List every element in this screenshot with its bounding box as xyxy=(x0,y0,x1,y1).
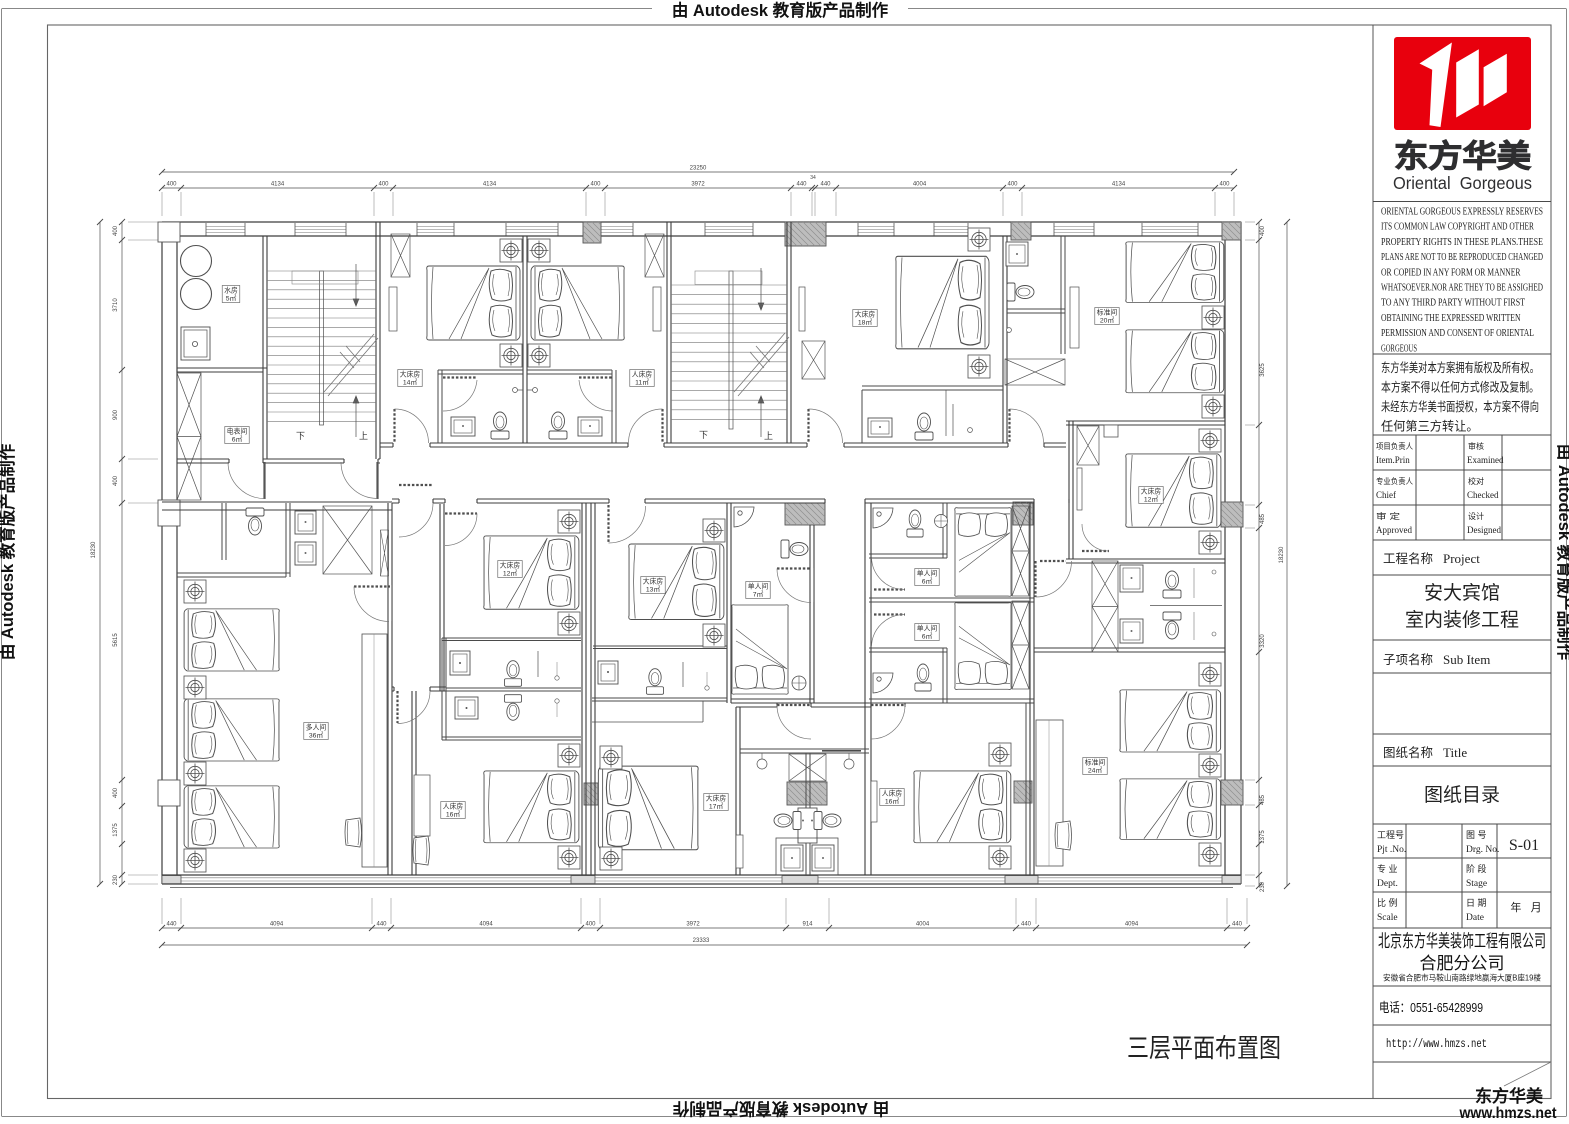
svg-text:400: 400 xyxy=(166,182,177,188)
svg-text:Checked: Checked xyxy=(1467,490,1499,500)
svg-text:18230: 18230 xyxy=(1279,546,1285,563)
svg-text:安大宾馆: 安大宾馆 xyxy=(1424,582,1500,604)
svg-text:4134: 4134 xyxy=(483,182,497,188)
svg-text:专 业: 专 业 xyxy=(1377,863,1398,874)
svg-text:Stage: Stage xyxy=(1466,879,1487,889)
svg-text:大床房: 大床房 xyxy=(400,370,421,379)
svg-text:16㎡: 16㎡ xyxy=(446,810,461,819)
svg-text:大床房: 大床房 xyxy=(500,561,521,570)
svg-text:400: 400 xyxy=(1007,182,1018,188)
svg-text:Drg. No.: Drg. No. xyxy=(1466,845,1499,855)
svg-text:上: 上 xyxy=(764,431,773,441)
svg-text:230: 230 xyxy=(113,874,119,885)
svg-text:440: 440 xyxy=(1021,922,1032,928)
svg-text:6㎡: 6㎡ xyxy=(232,435,243,444)
svg-text:18230: 18230 xyxy=(91,541,97,558)
svg-text:http://www.hmzs.net: http://www.hmzs.net xyxy=(1386,1038,1487,1051)
svg-text:400: 400 xyxy=(1219,182,1230,188)
svg-text:5615: 5615 xyxy=(113,633,119,647)
svg-text:电话：0551-65428999: 电话：0551-65428999 xyxy=(1379,1000,1483,1015)
svg-text:工程名称: 工程名称 xyxy=(1383,551,1433,566)
svg-text:专业负责人: 专业负责人 xyxy=(1376,476,1413,486)
svg-text:单人间: 单人间 xyxy=(748,582,769,591)
svg-text:485: 485 xyxy=(1260,513,1266,524)
svg-text:23333: 23333 xyxy=(693,938,710,944)
svg-text:34: 34 xyxy=(810,175,816,181)
svg-text:ORIENTAL GORGEOUS EXPRESSLY RE: ORIENTAL GORGEOUS EXPRESSLY RESERVES xyxy=(1381,207,1543,218)
svg-text:PERMISSION AND CONSENT OF ORIE: PERMISSION AND CONSENT OF ORIENTAL xyxy=(1381,328,1534,339)
svg-text:图纸目录: 图纸目录 xyxy=(1424,784,1500,806)
svg-text:S-01: S-01 xyxy=(1509,837,1539,854)
svg-text:北京东方华美装饰工程有限公司: 北京东方华美装饰工程有限公司 xyxy=(1378,931,1546,951)
svg-text:电表间: 电表间 xyxy=(227,427,248,436)
svg-text:由 Autodesk 教育版产品制作: 由 Autodesk 教育版产品制作 xyxy=(672,0,889,20)
svg-text:16㎡: 16㎡ xyxy=(885,797,900,806)
svg-text:东方华美对本方案拥有版权及所有权。: 东方华美对本方案拥有版权及所有权。 xyxy=(1381,360,1539,375)
svg-text:440: 440 xyxy=(376,922,387,928)
svg-text:GORGEOUS: GORGEOUS xyxy=(1381,343,1417,354)
svg-text:1375: 1375 xyxy=(1260,830,1266,844)
svg-text:由 Autodesk 教育版产品制作: 由 Autodesk 教育版产品制作 xyxy=(1555,444,1569,661)
svg-text:OBTAINING THE EXPRESSED WRITTE: OBTAINING THE EXPRESSED WRITTEN xyxy=(1381,313,1521,324)
svg-text:ITS COMMON LAW COPYRIGHT AND O: ITS COMMON LAW COPYRIGHT AND OTHER xyxy=(1381,222,1534,233)
svg-text:400: 400 xyxy=(113,475,119,486)
svg-text:OR COPIED IN ANY FORM OR MANNE: OR COPIED IN ANY FORM OR MANNER xyxy=(1381,267,1521,278)
svg-text:设计: 设计 xyxy=(1468,511,1484,521)
svg-text:13㎡: 13㎡ xyxy=(646,585,661,594)
svg-text:1375: 1375 xyxy=(113,823,119,837)
svg-text:TO ANY THIRD PARTY WITHOUT FIR: TO ANY THIRD PARTY WITHOUT FIRST xyxy=(1381,298,1525,309)
svg-text:年 月: 年 月 xyxy=(1510,900,1541,914)
svg-text:Chief: Chief xyxy=(1376,490,1396,500)
svg-text:400: 400 xyxy=(590,182,601,188)
svg-text:室内装修工程: 室内装修工程 xyxy=(1405,609,1519,631)
svg-text:Sub Item: Sub Item xyxy=(1443,652,1490,667)
svg-text:Pjt .No.: Pjt .No. xyxy=(1377,845,1406,855)
svg-text:本方案不得以任何方式修改及复制。: 本方案不得以任何方式修改及复制。 xyxy=(1381,380,1539,395)
svg-text:11㎡: 11㎡ xyxy=(635,378,649,387)
svg-text:图 号: 图 号 xyxy=(1466,830,1487,840)
svg-text:Scale: Scale xyxy=(1377,913,1398,923)
svg-text:17㎡: 17㎡ xyxy=(709,802,724,811)
svg-text:项目负责人: 项目负责人 xyxy=(1376,441,1413,451)
svg-text:未经东方华美书面授权，本方案不得向: 未经东方华美书面授权，本方案不得向 xyxy=(1381,399,1539,414)
svg-text:大床房: 大床房 xyxy=(1141,487,1162,496)
svg-text:4094: 4094 xyxy=(270,922,284,928)
svg-text:比 例: 比 例 xyxy=(1377,897,1398,908)
svg-text:大床房: 大床房 xyxy=(855,310,876,319)
svg-text:标准间: 标准间 xyxy=(1097,308,1118,317)
svg-text:PLANS ARE NOT TO BE REPRODUCED: PLANS ARE NOT TO BE REPRODUCED CHANGED xyxy=(1381,252,1543,263)
svg-text:3710: 3710 xyxy=(113,298,119,312)
svg-text:合肥分公司: 合肥分公司 xyxy=(1420,954,1505,973)
svg-text:18㎡: 18㎡ xyxy=(858,318,873,327)
svg-text:东方华美: 东方华美 xyxy=(1394,139,1531,174)
svg-text:3972: 3972 xyxy=(691,182,705,188)
svg-text:审 定: 审 定 xyxy=(1376,511,1400,521)
svg-text:400: 400 xyxy=(585,922,596,928)
svg-text:440: 440 xyxy=(1232,922,1243,928)
svg-text:900: 900 xyxy=(113,409,119,420)
svg-text:三层平面布置图: 三层平面布置图 xyxy=(1127,1034,1281,1063)
svg-text:6㎡: 6㎡ xyxy=(922,577,933,586)
svg-text:日 期: 日 期 xyxy=(1466,898,1487,908)
svg-text:3625: 3625 xyxy=(1260,363,1266,377)
svg-text:400: 400 xyxy=(1260,225,1266,236)
svg-text:由 Autodesk 教育版产品制作: 由 Autodesk 教育版产品制作 xyxy=(0,443,17,660)
svg-text:阶 段: 阶 段 xyxy=(1466,863,1487,874)
svg-text:人床房: 人床房 xyxy=(443,802,464,811)
svg-text:单人间: 单人间 xyxy=(917,569,938,578)
svg-text:校对: 校对 xyxy=(1468,476,1484,486)
svg-text:4004: 4004 xyxy=(913,182,927,188)
svg-text:大床房: 大床房 xyxy=(643,577,664,586)
svg-text:PROPERTY RIGHTS IN THESE PLANS: PROPERTY RIGHTS IN THESE PLANS.THESE xyxy=(1381,237,1543,248)
svg-text:Approved: Approved xyxy=(1376,525,1412,535)
svg-text:上: 上 xyxy=(359,431,368,441)
svg-text:多人间: 多人间 xyxy=(306,723,327,732)
svg-text:www.hmzs.net: www.hmzs.net xyxy=(1459,1105,1557,1122)
svg-text:7㎡: 7㎡ xyxy=(753,590,764,599)
svg-text:5㎡: 5㎡ xyxy=(226,294,237,303)
svg-text:4094: 4094 xyxy=(1125,922,1139,928)
svg-text:914: 914 xyxy=(802,922,813,928)
svg-text:23250: 23250 xyxy=(690,166,707,172)
svg-text:400: 400 xyxy=(113,225,119,236)
svg-text:14㎡: 14㎡ xyxy=(403,378,418,387)
svg-text:大床房: 大床房 xyxy=(706,794,727,803)
svg-text:Examined: Examined xyxy=(1467,455,1504,465)
svg-text:4134: 4134 xyxy=(271,182,285,188)
svg-text:6㎡: 6㎡ xyxy=(922,632,933,641)
svg-text:12㎡: 12㎡ xyxy=(1144,495,1159,504)
svg-text:230: 230 xyxy=(1260,881,1266,892)
svg-text:Item.Prin: Item.Prin xyxy=(1376,455,1410,465)
svg-text:图纸名称: 图纸名称 xyxy=(1383,745,1433,760)
svg-text:Dept.: Dept. xyxy=(1377,879,1398,889)
svg-text:20㎡: 20㎡ xyxy=(1100,316,1115,325)
svg-text:Oriental Gorgeous: Oriental Gorgeous xyxy=(1393,173,1532,193)
svg-text:Designed: Designed xyxy=(1467,525,1501,535)
svg-text:440: 440 xyxy=(796,182,807,188)
svg-text:4134: 4134 xyxy=(1112,182,1126,188)
svg-text:3320: 3320 xyxy=(1260,634,1266,648)
svg-text:440: 440 xyxy=(820,182,831,188)
svg-text:Date: Date xyxy=(1466,913,1484,923)
svg-text:24㎡: 24㎡ xyxy=(1088,766,1103,775)
svg-text:485: 485 xyxy=(1260,794,1266,805)
svg-text:安徽省合肥市马鞍山南路绿地赢海大厦B座19楼: 安徽省合肥市马鞍山南路绿地赢海大厦B座19楼 xyxy=(1383,973,1541,983)
svg-text:单人间: 单人间 xyxy=(917,624,938,633)
svg-text:12㎡: 12㎡ xyxy=(503,569,518,578)
svg-text:36㎡: 36㎡ xyxy=(309,731,324,740)
svg-text:Project: Project xyxy=(1443,551,1480,566)
svg-text:Title: Title xyxy=(1443,745,1467,760)
svg-text:由 Autodesk 教育版产品制作: 由 Autodesk 教育版产品制作 xyxy=(672,1099,889,1119)
svg-text:4004: 4004 xyxy=(916,922,930,928)
svg-text:任何第三方转让。: 任何第三方转让。 xyxy=(1381,419,1479,434)
svg-text:工程号: 工程号 xyxy=(1377,830,1404,840)
svg-text:审核: 审核 xyxy=(1468,441,1484,451)
svg-text:标准间: 标准间 xyxy=(1085,758,1106,767)
svg-text:4094: 4094 xyxy=(479,922,493,928)
svg-text:400: 400 xyxy=(113,787,119,798)
svg-text:子项名称: 子项名称 xyxy=(1383,652,1433,667)
svg-text:400: 400 xyxy=(378,182,389,188)
svg-text:下: 下 xyxy=(699,430,708,440)
svg-text:440: 440 xyxy=(166,922,177,928)
svg-text:人床房: 人床房 xyxy=(632,370,653,379)
svg-text:3972: 3972 xyxy=(686,922,700,928)
svg-text:东方华美: 东方华美 xyxy=(1475,1086,1544,1106)
svg-text:人床房: 人床房 xyxy=(882,789,903,798)
svg-text:WHATSOEVER.NOR ARE THEY TO BE: WHATSOEVER.NOR ARE THEY TO BE ASSIGHED xyxy=(1381,283,1543,294)
svg-text:下: 下 xyxy=(296,431,305,441)
svg-text:水房: 水房 xyxy=(224,286,238,295)
